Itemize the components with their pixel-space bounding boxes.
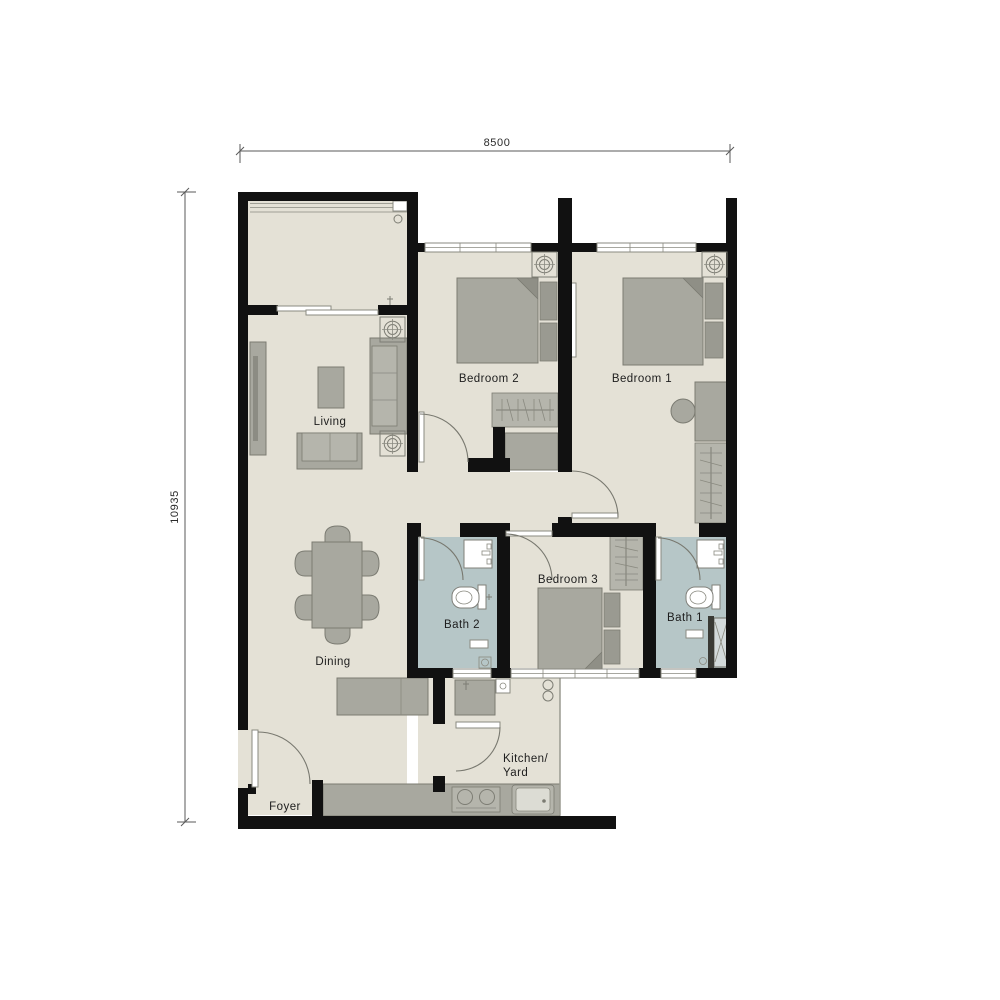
dimension-top: 8500	[236, 137, 734, 163]
wall	[407, 192, 418, 472]
bedroom2-label: Bedroom 2	[459, 373, 519, 385]
dining-table	[312, 542, 362, 628]
dining-chair	[295, 595, 313, 620]
kitchen-label-line2: Yard	[503, 767, 528, 779]
wall	[726, 198, 737, 678]
desk	[695, 382, 727, 441]
wall	[468, 458, 510, 472]
dining-chair	[325, 626, 350, 644]
window-band-icon	[661, 669, 696, 678]
bath2-label: Bath 2	[444, 619, 480, 631]
floor-doorway-entry	[238, 730, 248, 788]
window-band-icon	[425, 243, 531, 252]
balcony-ac-ledge	[393, 201, 407, 211]
floor-left-column	[248, 201, 407, 815]
tv	[253, 356, 258, 441]
desk-chair	[671, 399, 695, 423]
wall	[238, 816, 616, 829]
wall	[699, 523, 737, 537]
wall	[491, 668, 511, 678]
window-band-icon	[453, 669, 491, 678]
pillow	[604, 630, 620, 664]
bed-double	[623, 278, 703, 365]
wall	[238, 192, 248, 730]
dimension-left: 10935	[169, 188, 196, 826]
pillow	[540, 282, 557, 320]
wall	[696, 243, 726, 252]
wall	[493, 427, 505, 460]
wall	[312, 780, 323, 829]
towel-rail	[686, 630, 703, 638]
pillow	[705, 283, 723, 319]
floor-doorway-bath1	[656, 523, 699, 537]
pillow	[705, 322, 723, 358]
dining-chair	[361, 595, 379, 620]
bed-double	[457, 278, 538, 363]
wall	[378, 305, 416, 315]
wall	[407, 523, 418, 678]
kitchen-label-line1: Kitchen/	[503, 753, 549, 765]
dining-cabinet	[337, 678, 428, 715]
bed-double	[538, 588, 602, 672]
sofa-cushions	[372, 346, 397, 426]
wall	[696, 668, 737, 678]
bedroom1-label: Bedroom 1	[612, 373, 672, 385]
wall	[552, 523, 656, 537]
floor-plan: Living Dining Foyer Kitchen/ Yard Bedroo…	[0, 0, 1000, 1000]
wall	[643, 523, 656, 678]
bath1-label: Bath 1	[667, 612, 703, 624]
corridor-cabinet	[505, 433, 558, 470]
bedroom3-label: Bedroom 3	[538, 574, 598, 586]
coffee-table	[318, 367, 344, 408]
wall	[433, 776, 445, 792]
dimension-width-label: 8500	[484, 137, 511, 149]
wall	[407, 668, 453, 678]
wall	[238, 192, 416, 201]
sink-drain	[542, 799, 546, 803]
dining-label: Dining	[315, 656, 350, 668]
wall	[433, 668, 445, 724]
dining-chair	[325, 526, 350, 544]
floor-doorway-kitchen	[433, 724, 445, 776]
living-label: Living	[314, 416, 347, 428]
dining-chair	[361, 551, 379, 576]
pillow	[540, 323, 557, 361]
wall	[639, 668, 661, 678]
floor-doorway-bath2	[421, 523, 460, 537]
dining-chair	[295, 551, 313, 576]
pillow	[604, 593, 620, 627]
fridge	[455, 680, 495, 715]
wall	[497, 523, 510, 678]
floor-plan-canvas: Living Dining Foyer Kitchen/ Yard Bedroo…	[0, 0, 1000, 1000]
wall	[572, 243, 597, 252]
floor-corridor-opening	[407, 472, 418, 523]
dimension-height-label: 10935	[169, 490, 181, 524]
window-band-icon	[597, 243, 696, 252]
floor-doorway-bedroom2	[418, 458, 468, 472]
wall	[558, 198, 572, 472]
shower-screen	[708, 616, 714, 668]
wall	[238, 305, 278, 315]
wall	[531, 243, 558, 252]
basin	[496, 679, 510, 693]
sofa-two-seat-cushions	[302, 433, 357, 461]
window-band-icon	[511, 669, 639, 678]
floor-corridor	[418, 472, 572, 523]
floor-doorway-bedroom1	[558, 472, 572, 517]
towel-rail	[470, 640, 488, 648]
foyer-label: Foyer	[269, 801, 301, 813]
